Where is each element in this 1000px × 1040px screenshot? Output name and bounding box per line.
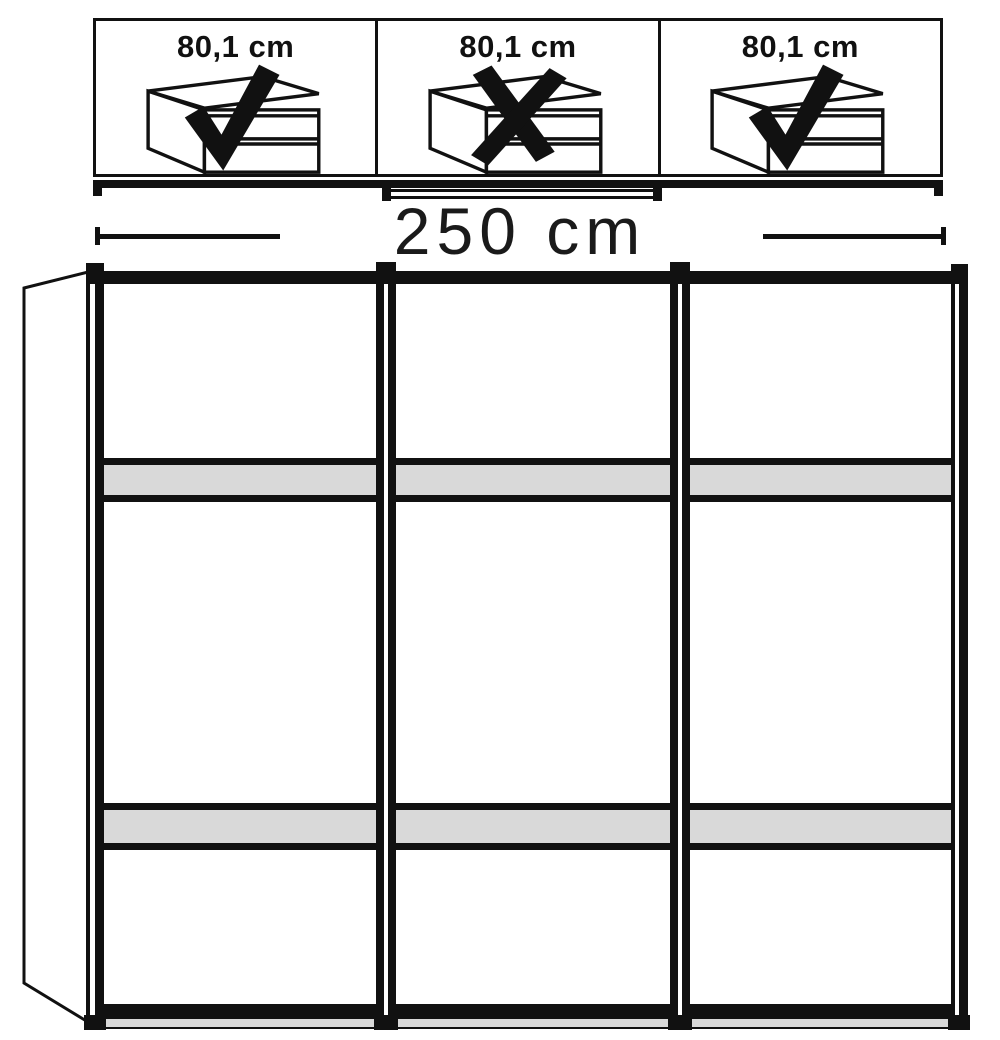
- wardrobe-drawing: [0, 0, 1000, 1040]
- door-crossbar: [396, 465, 670, 495]
- door-crossbar: [690, 465, 951, 495]
- sliding-door-1: [104, 458, 376, 1018]
- door-crossbar: [396, 810, 670, 843]
- wardrobe-side-panel: [24, 272, 88, 1022]
- door-crossbar: [104, 465, 376, 495]
- sliding-door-2: [396, 458, 670, 1018]
- door-crossbar: [690, 810, 951, 843]
- wardrobe-dimension-diagram: 80,1 cm 80,1 cm: [0, 0, 1000, 1040]
- wardrobe-plinth: [86, 1018, 968, 1028]
- door-crossbar: [104, 810, 376, 843]
- sliding-door-3: [690, 458, 951, 1018]
- wardrobe-frame: [86, 262, 968, 1030]
